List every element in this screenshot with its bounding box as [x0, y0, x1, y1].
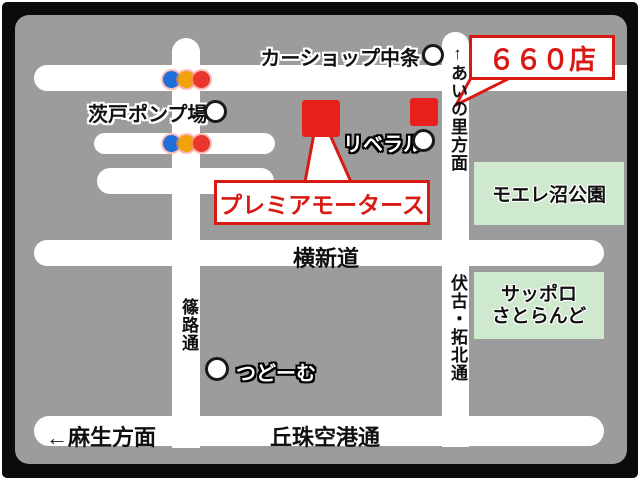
moere-park-label: モエレ沼公園: [492, 180, 606, 207]
liberal-label: リベラル: [343, 128, 423, 157]
traffic-light-red-icon: [193, 71, 210, 88]
map-canvas: モエレ沼公園 サッポロ さとらんど カーショップ中条 茨戸ポンプ場 リベラル つ…: [15, 15, 627, 464]
store-name-label: プレミアモータース: [219, 186, 425, 220]
store-location-marker: [302, 100, 340, 137]
store-number-callout: ６６０店: [469, 35, 615, 80]
carshop-nakajo-label: カーショップ中条: [215, 42, 420, 71]
shinoro-road-label: 篠路通: [173, 298, 201, 352]
ainosato-direction-label: ↑あいの里方面: [443, 44, 470, 172]
map-frame: モエレ沼公園 サッポロ さとらんど カーショップ中条 茨戸ポンプ場 リベラル つ…: [2, 2, 638, 478]
traffic-light-second: [163, 135, 210, 152]
liberal-marker: [412, 129, 435, 152]
asabu-direction-label: ←麻生方面: [46, 420, 156, 452]
satoland-label-line1: サッポロ: [501, 284, 577, 306]
okadama-airport-road-label: 丘珠空港通: [270, 420, 380, 452]
store-number-label: ６６０店: [488, 38, 596, 77]
ibarato-pump-label: 茨戸ポンプ場: [88, 98, 207, 127]
sapporo-satoland-area: サッポロ さとらんど: [474, 272, 604, 339]
ibarato-pump-marker: [204, 100, 227, 123]
carshop-nakajo-marker: [422, 44, 444, 66]
yokoshindo-road-label: 横新道: [266, 241, 386, 273]
store-name-callout: プレミアモータース: [214, 180, 430, 225]
tsudome-marker: [205, 357, 229, 381]
traffic-light-top: [163, 71, 210, 88]
satoland-label-line2: さとらんど: [492, 306, 586, 328]
tsudome-label: つどーむ: [236, 357, 316, 386]
secondary-store-marker: [410, 98, 438, 126]
moere-numa-park-area: モエレ沼公園: [474, 162, 624, 225]
traffic-light-red-icon: [193, 135, 210, 152]
fushiko-takuhoku-road-label: 伏古・拓北通: [443, 274, 470, 382]
